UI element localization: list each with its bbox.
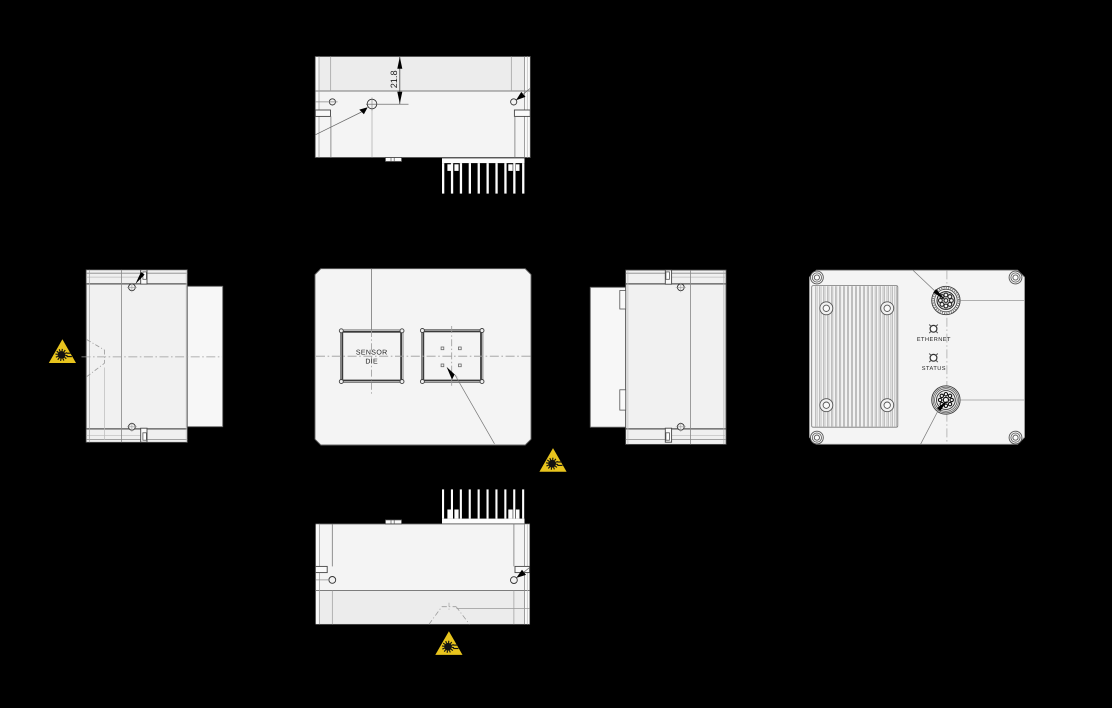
svg-text:ETHERNET: ETHERNET [917,337,951,343]
svg-text:21.8: 21.8 [389,70,399,88]
svg-text:DIE: DIE [365,359,378,366]
svg-text:SENSOR: SENSOR [356,349,388,356]
svg-text:STATUS: STATUS [922,366,946,372]
